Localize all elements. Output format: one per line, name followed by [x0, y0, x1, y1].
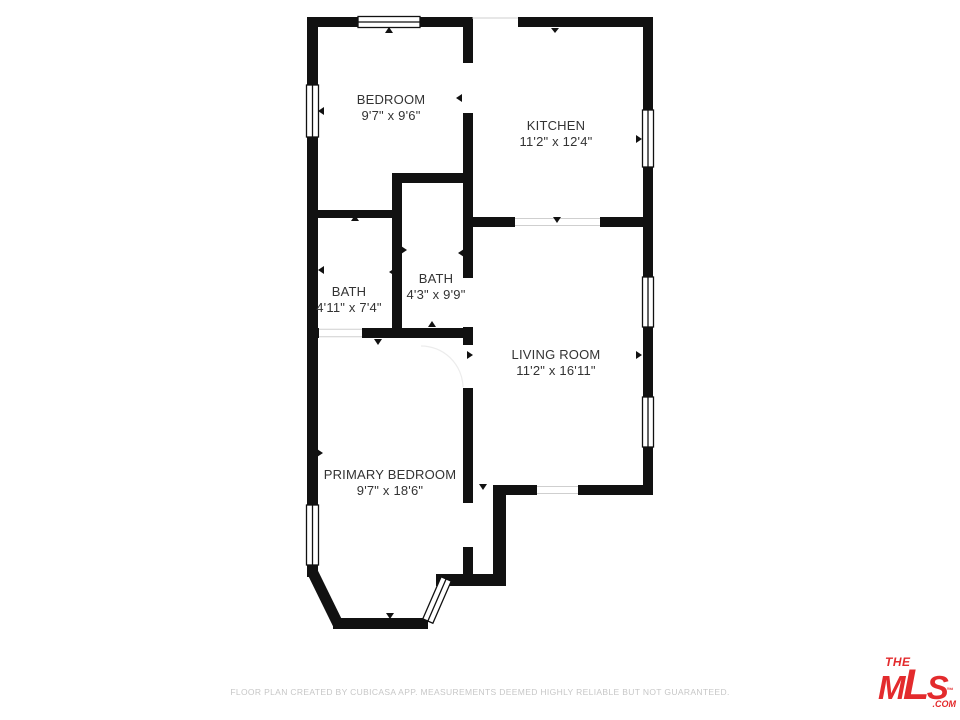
logo-trademark: ™: [946, 688, 953, 695]
room-name: PRIMARY BEDROOM: [324, 467, 457, 483]
room-label-kitchen: KITCHEN 11'2" x 12'4": [520, 118, 593, 150]
room-dimensions: 4'11" x 7'4": [316, 300, 382, 316]
room-name: KITCHEN: [520, 118, 593, 134]
room-dimensions: 11'2" x 12'4": [520, 134, 593, 150]
logo-letter-m: M: [878, 669, 903, 706]
window-kitchen-right: [643, 110, 654, 167]
room-name: LIVING ROOM: [512, 347, 601, 363]
room-label-living-room: LIVING ROOM 11'2" x 16'11": [512, 347, 601, 379]
floor-plan-drawing: [0, 0, 960, 720]
window-primary-left: [307, 505, 319, 565]
room-name: BATH: [406, 271, 465, 287]
room-dimensions: 9'7" x 18'6": [324, 483, 457, 499]
logo-letter-l: L: [903, 661, 927, 709]
room-label-bedroom: BEDROOM 9'7" x 9'6": [357, 92, 426, 124]
window-bedroom-top: [358, 17, 420, 28]
door-swing-arc: [421, 346, 463, 387]
window-bedroom-left: [307, 85, 319, 137]
logo-com-text: .COM: [933, 699, 957, 709]
floor-plan-canvas: BEDROOM 9'7" x 9'6" KITCHEN 11'2" x 12'4…: [0, 0, 960, 720]
disclaimer-text: FLOOR PLAN CREATED BY CUBICASA APP. MEAS…: [230, 687, 729, 697]
room-dimensions: 4'3" x 9'9": [406, 287, 465, 303]
themls-logo: THE MLS™ .COM: [878, 652, 954, 710]
opening-threshold-lines: [319, 18, 600, 494]
room-name: BEDROOM: [357, 92, 426, 108]
window-living-right-upper: [643, 277, 654, 327]
room-dimensions: 9'7" x 9'6": [357, 108, 426, 124]
window-living-right-lower: [643, 397, 654, 447]
room-label-primary-bedroom: PRIMARY BEDROOM 9'7" x 18'6": [324, 467, 457, 499]
room-label-bath-center: BATH 4'3" x 9'9": [406, 271, 465, 303]
room-dimensions: 11'2" x 16'11": [512, 363, 601, 379]
room-name: BATH: [316, 284, 382, 300]
room-label-bath-left: BATH 4'11" x 7'4": [316, 284, 382, 316]
